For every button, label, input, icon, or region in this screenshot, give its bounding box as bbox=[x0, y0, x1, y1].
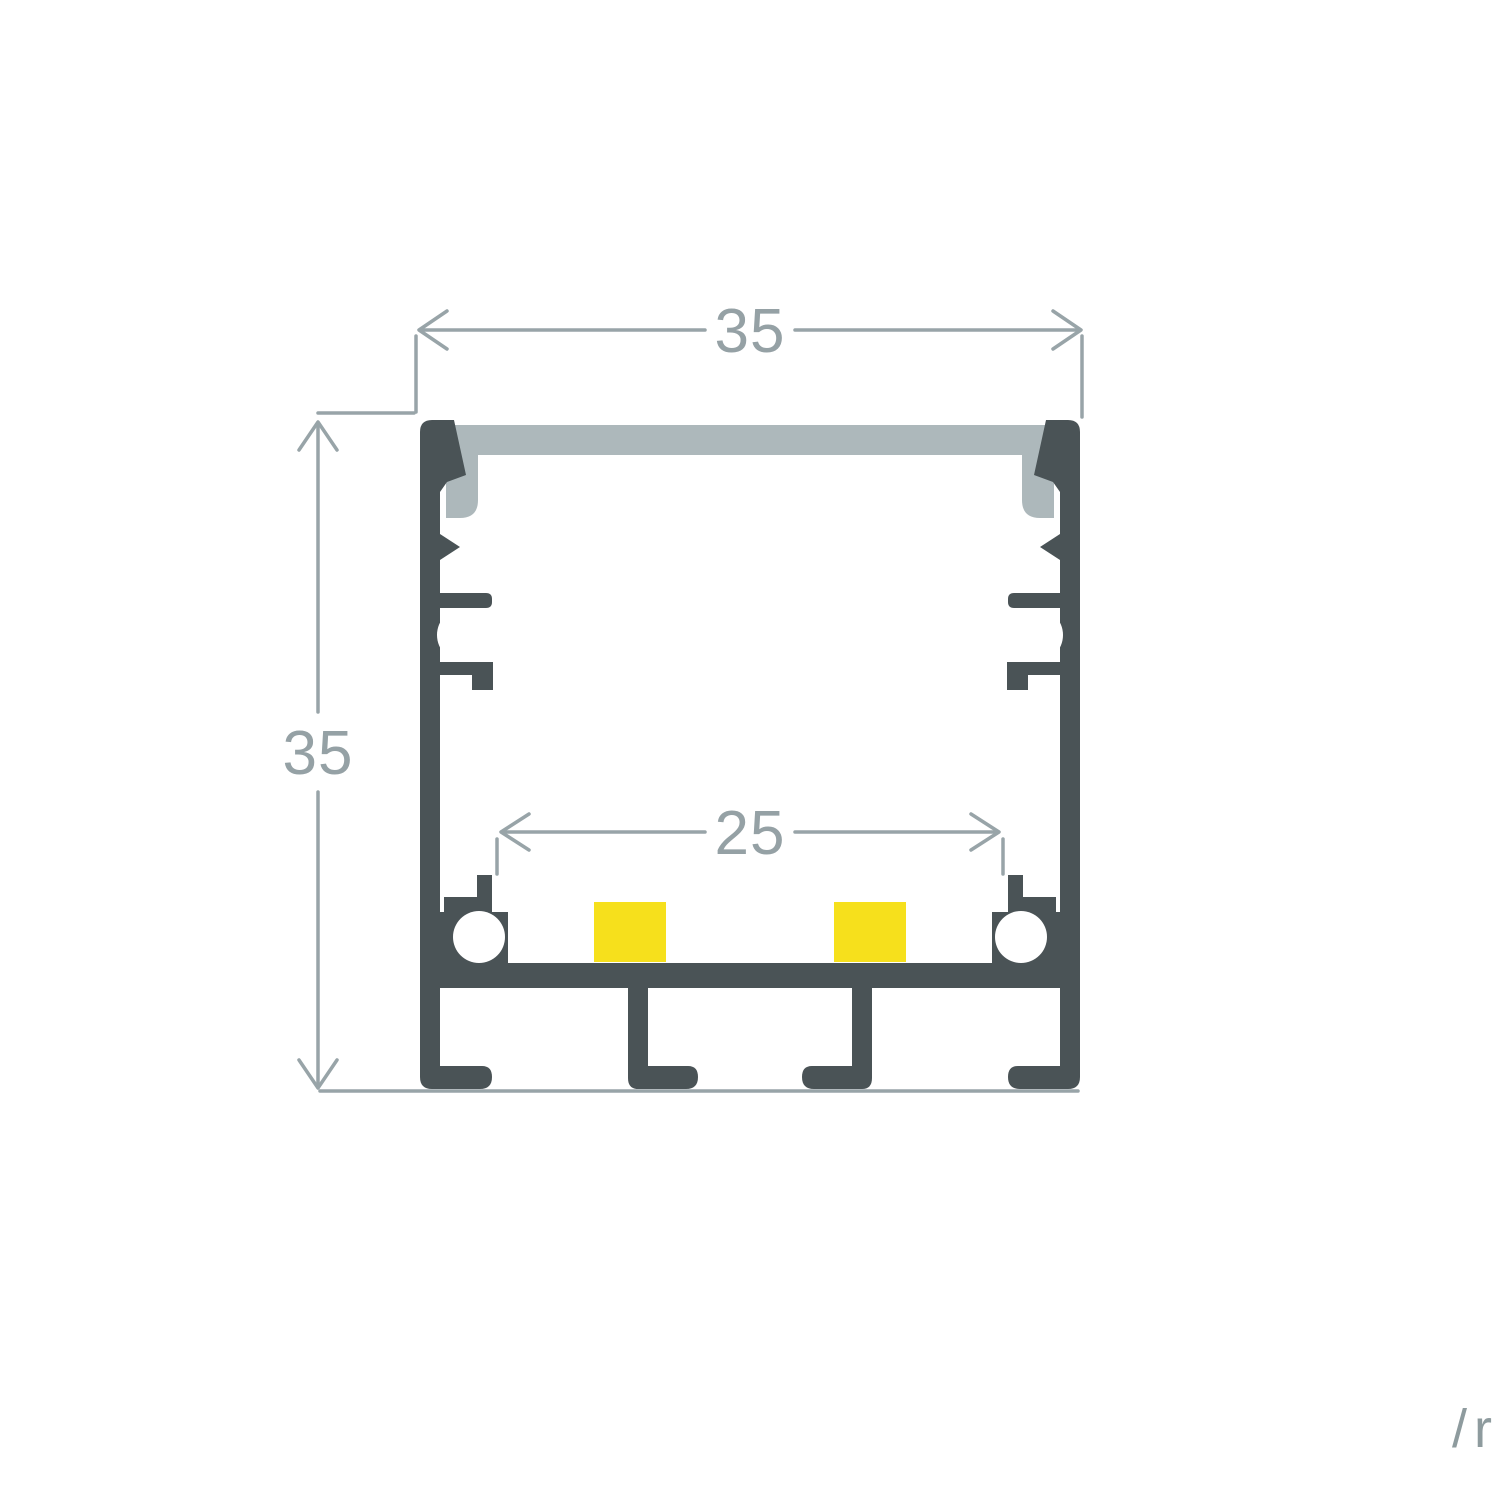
dimension-labels: 35 35 25 bbox=[283, 297, 786, 868]
bottom-leg bbox=[628, 986, 698, 1089]
aluminium-profile bbox=[420, 420, 1080, 1089]
screw-port-hole-upper bbox=[437, 608, 491, 662]
profile-right-half bbox=[750, 420, 1080, 1089]
base-plate bbox=[438, 963, 750, 988]
screw-port-hole-lower bbox=[453, 911, 505, 963]
led-strip-block bbox=[594, 902, 666, 962]
technical-drawing-canvas: 35 35 25 /r bbox=[0, 0, 1500, 1500]
screw-port-upper-shelf bbox=[440, 593, 492, 608]
profile-side-wall bbox=[420, 420, 492, 1089]
dimension-label-outer-width: 35 bbox=[715, 297, 786, 366]
technical-drawing-page: 35 35 25 /r bbox=[0, 0, 1500, 1500]
led-strips bbox=[594, 902, 666, 962]
inner-ledge-tab bbox=[444, 875, 492, 912]
screw-port-lower-shelf bbox=[440, 662, 493, 690]
diffuser-cover bbox=[446, 425, 750, 518]
profile-left-half bbox=[420, 420, 750, 1089]
dimension-label-outer-height: 35 bbox=[283, 719, 354, 788]
dimension-label-inner-width: 25 bbox=[715, 799, 786, 868]
profile-body bbox=[420, 420, 750, 1089]
dimension-outer-height bbox=[299, 413, 1078, 1091]
watermark-text: /r bbox=[1452, 1399, 1499, 1459]
diffuser-top-plate bbox=[446, 425, 750, 455]
